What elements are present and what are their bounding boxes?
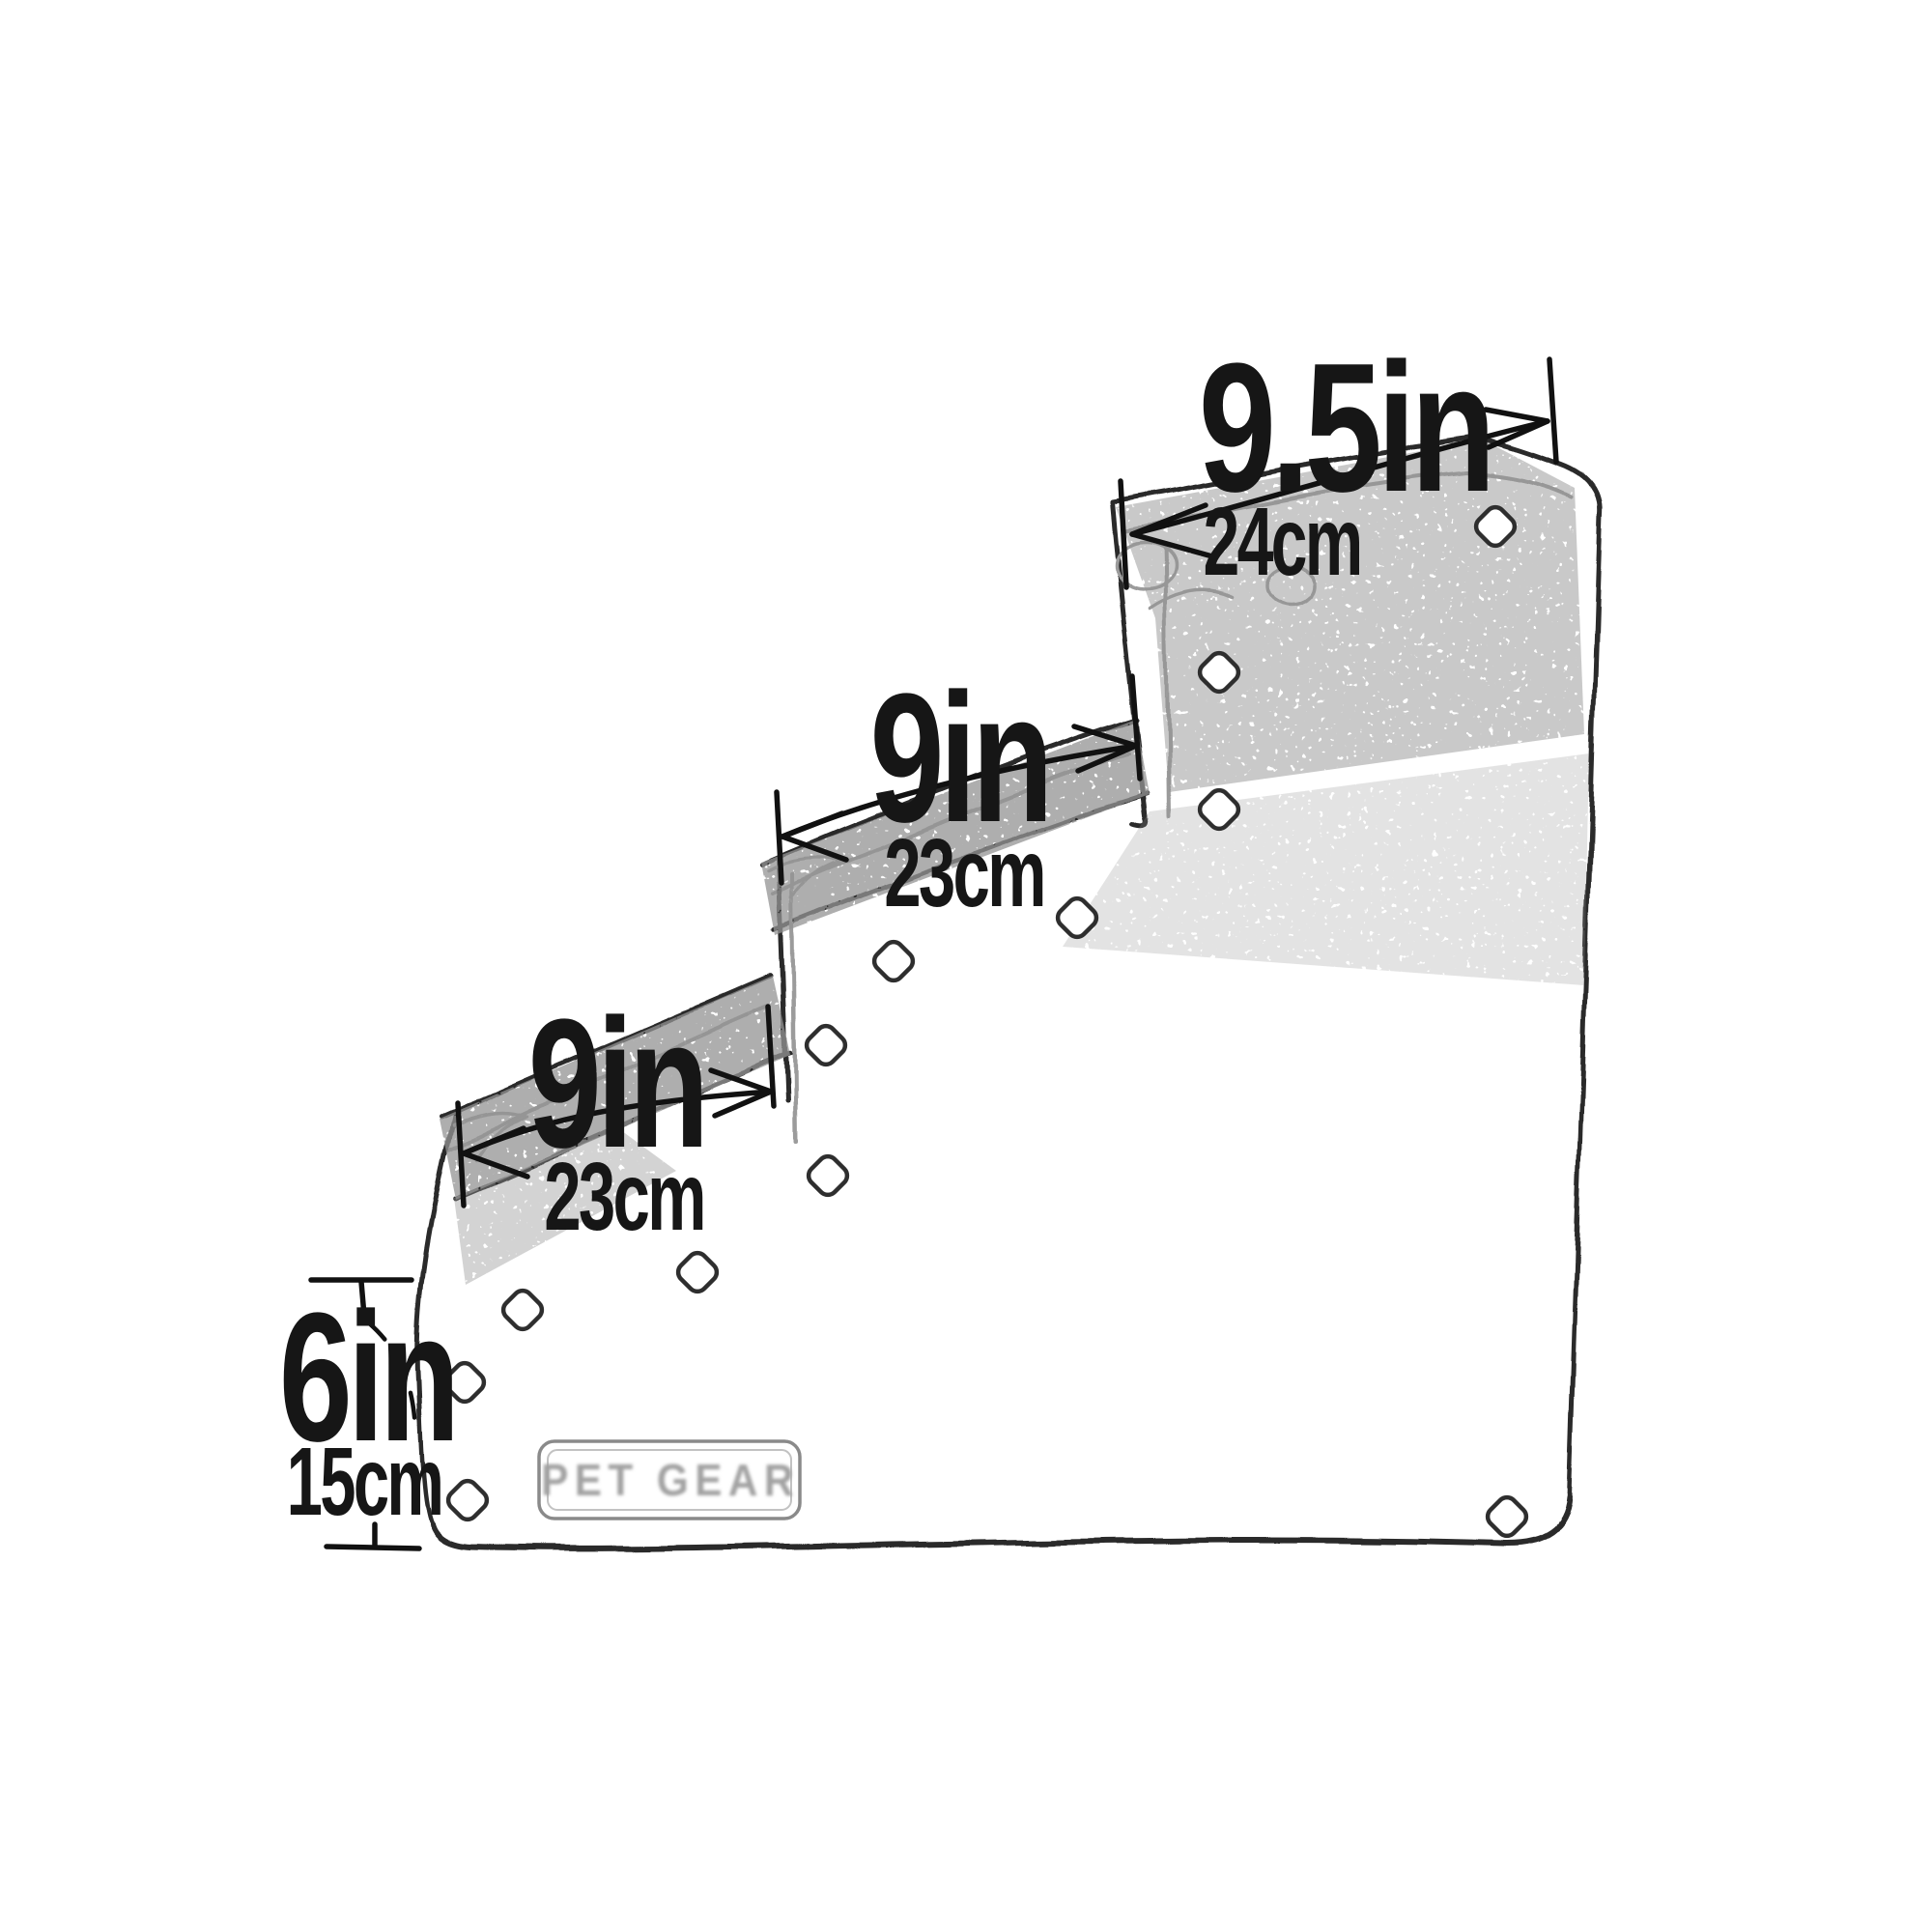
diagram-canvas: 9.5in 24cm 9in 23cm 9in 23cm 6in 15cm PE… [0,0,1932,1932]
dimension-bar-bottom [327,1547,419,1548]
top-step-cm-label: 24cm [1203,489,1360,596]
bottom-step-cm-label: 23cm [544,1143,703,1251]
middle-step-cm-label: 23cm [884,819,1043,927]
background [0,0,1932,1932]
pet-stairs-dimension-diagram: 9.5in 24cm 9in 23cm 9in 23cm 6in 15cm PE… [0,0,1932,1932]
step-height-cm-label: 15cm [287,1429,442,1537]
brand-badge-text: PET GEAR [541,1456,800,1505]
